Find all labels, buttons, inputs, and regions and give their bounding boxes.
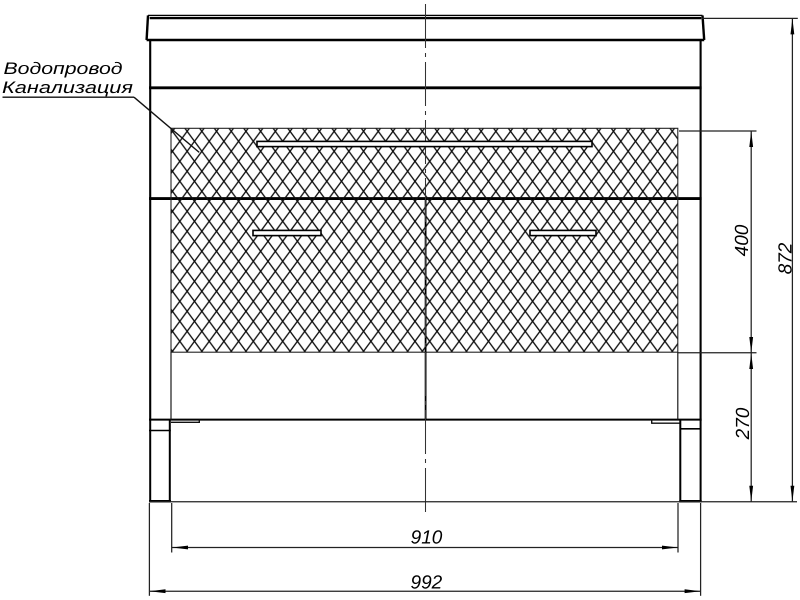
svg-text:Водопровод: Водопровод <box>4 59 123 78</box>
svg-text:Канализация: Канализация <box>2 78 133 97</box>
svg-text:270: 270 <box>733 407 754 440</box>
svg-text:992: 992 <box>411 573 443 594</box>
svg-text:872: 872 <box>776 242 797 274</box>
svg-text:910: 910 <box>411 527 443 548</box>
svg-text:400: 400 <box>732 224 753 256</box>
